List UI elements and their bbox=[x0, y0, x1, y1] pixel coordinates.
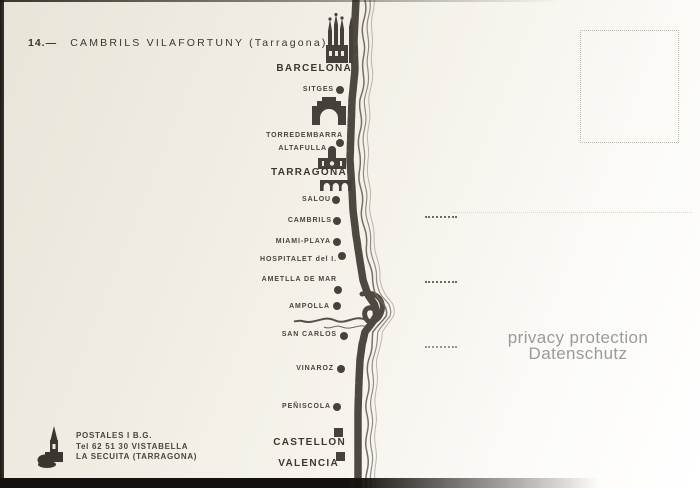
town-marker-ampolla bbox=[333, 302, 341, 310]
town-label-sitges: SITGES bbox=[303, 86, 334, 93]
town-label-san-carlos: SAN CARLOS bbox=[282, 331, 337, 338]
town-label-miami-playa: MIAMI-PLAYA bbox=[276, 238, 331, 245]
arc-de-bera-icon bbox=[311, 97, 347, 125]
town-label-salou: SALOU bbox=[302, 196, 331, 203]
card-edge-left bbox=[0, 0, 4, 488]
town-marker-valencia bbox=[336, 452, 345, 461]
privacy-watermark-line2: Datenschutz bbox=[488, 346, 668, 362]
town-label-castellon: CASTELLON bbox=[273, 437, 346, 448]
coastal-road bbox=[350, 0, 376, 488]
town-marker-sitges bbox=[336, 86, 344, 94]
town-label-peniscola: PEÑISCOLA bbox=[282, 403, 331, 410]
town-label-hospitalet: HOSPITALET del I. bbox=[260, 256, 337, 263]
town-label-valencia: VALENCIA bbox=[278, 458, 339, 469]
town-marker-salou bbox=[332, 196, 340, 204]
address-line-faint bbox=[452, 212, 692, 213]
publisher-line-2: Tel 62 51 30 VISTABELLA bbox=[76, 442, 197, 453]
town-marker-cambrils bbox=[333, 217, 341, 225]
town-label-ampolla: AMPOLLA bbox=[289, 303, 330, 310]
address-line-1 bbox=[425, 216, 457, 218]
card-edge-top bbox=[0, 0, 700, 2]
stamp-box bbox=[580, 30, 679, 143]
town-marker-ametlla bbox=[334, 286, 342, 294]
town-label-tarragona: TARRAGONA bbox=[271, 167, 347, 178]
coastline-wave bbox=[358, 0, 386, 488]
town-marker-peniscola bbox=[333, 403, 341, 411]
publisher-line-3: LA SECUITA (TARRAGONA) bbox=[76, 452, 197, 463]
postcard-back: BARCELONA SITGES TORREDEMBARRA ALTAFULLA… bbox=[0, 0, 700, 488]
town-marker-miami-playa bbox=[333, 238, 341, 246]
coastline-wave bbox=[363, 0, 391, 488]
postcard-title: 14.— CAMBRILS VILAFORTUNY (Tarragona) bbox=[28, 37, 328, 49]
postcard-number: 14.— bbox=[28, 37, 57, 49]
ebro-river bbox=[294, 318, 366, 322]
address-line-3 bbox=[425, 346, 457, 348]
sagrada-familia-icon bbox=[326, 13, 354, 63]
coastline-wave bbox=[367, 0, 394, 488]
address-line-2 bbox=[425, 281, 457, 283]
town-label-altafulla: ALTAFULLA bbox=[278, 145, 327, 152]
privacy-watermark: privacy protection Datenschutz bbox=[488, 330, 668, 361]
town-marker-castellon bbox=[334, 428, 343, 437]
card-edge-bottom bbox=[0, 478, 600, 488]
publisher-logo-icon bbox=[37, 424, 69, 468]
town-label-torredembarra: TORREDEMBARRA bbox=[266, 132, 343, 139]
town-marker-san-carlos bbox=[340, 332, 348, 340]
town-label-vinaroz: VINAROZ bbox=[296, 365, 334, 372]
town-label-cambrils: CAMBRILS bbox=[288, 217, 332, 224]
town-marker-vinaroz bbox=[337, 365, 345, 373]
town-marker-torredembarra bbox=[336, 139, 344, 147]
town-label-barcelona: BARCELONA bbox=[276, 63, 352, 74]
ebro-river-branch bbox=[324, 326, 368, 328]
postcard-title-name: CAMBRILS VILAFORTUNY bbox=[70, 37, 244, 49]
town-marker-hospitalet bbox=[338, 252, 346, 260]
publisher-line-1: POSTALES I B.G. bbox=[76, 431, 197, 442]
publisher-block: POSTALES I B.G. Tel 62 51 30 VISTABELLA … bbox=[76, 431, 197, 463]
ebro-delta-loop bbox=[362, 293, 382, 322]
town-label-ametlla: AMETLLA DE MAR bbox=[262, 276, 337, 283]
town-marker-altafulla bbox=[328, 146, 336, 154]
tarragona-aqueduct-icon bbox=[320, 177, 352, 191]
postcard-title-region: (Tarragona) bbox=[249, 37, 327, 49]
